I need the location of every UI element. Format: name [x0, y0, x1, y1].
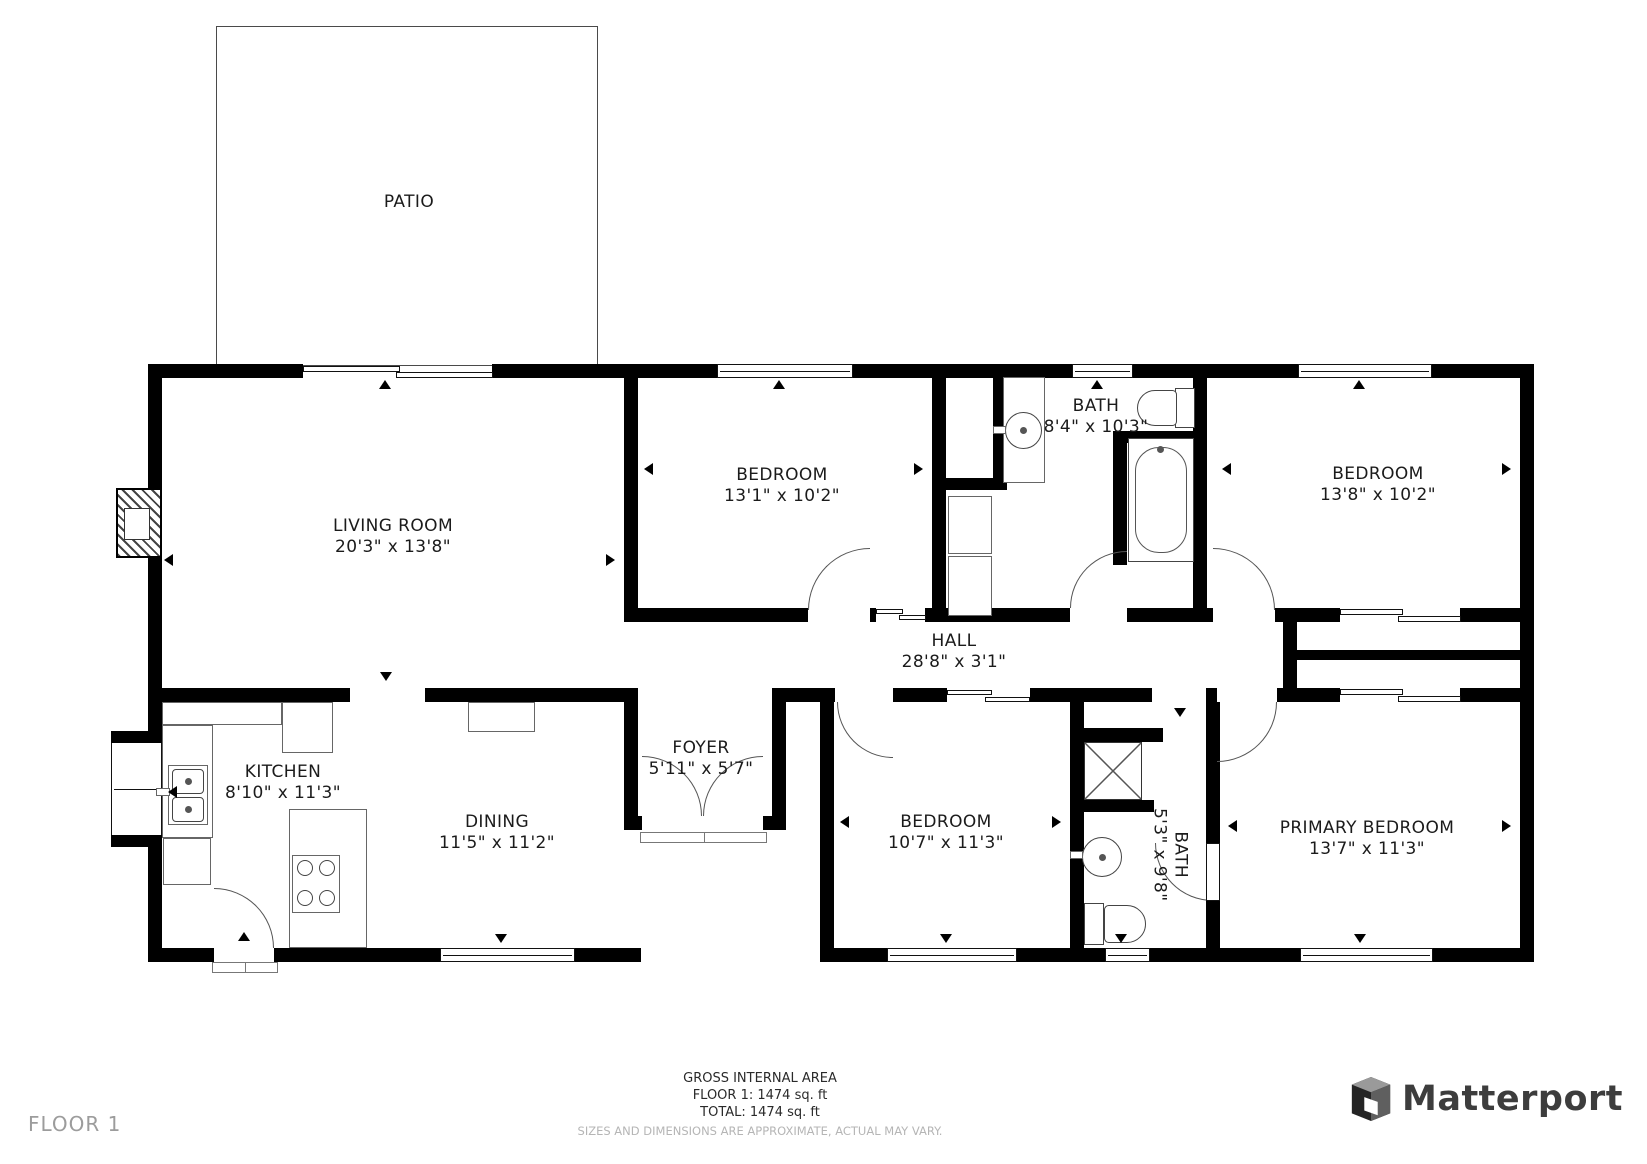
- room-dims: 5'3" x 9'8": [1149, 770, 1170, 940]
- wall: [1283, 608, 1297, 702]
- wall: [111, 731, 162, 743]
- door-leaf: [1206, 843, 1220, 901]
- room-label-bedroom-right: BEDROOM 13'8" x 10'2": [1238, 464, 1518, 505]
- door-arc: [1070, 551, 1127, 608]
- room-dims: 20'3" x 13'8": [253, 537, 533, 558]
- wall: [148, 364, 303, 378]
- closet-cabinet: [948, 556, 992, 616]
- direction-arrow: [1354, 934, 1366, 943]
- rear-step: [212, 962, 278, 973]
- direction-arrow: [606, 554, 615, 566]
- room-name: HALL: [814, 631, 1094, 652]
- wall: [274, 948, 440, 962]
- matterport-logo: Matterport: [1348, 1076, 1623, 1122]
- wall: [148, 948, 214, 962]
- room-label-bedroom-bottom: BEDROOM 10'7" x 11'3": [806, 812, 1086, 853]
- room-name: BEDROOM: [1238, 464, 1518, 485]
- closet-cabinet: [948, 496, 992, 554]
- direction-arrow: [495, 934, 507, 943]
- direction-arrow: [380, 672, 392, 681]
- shower-x: [1084, 742, 1142, 800]
- matterport-icon: [1348, 1076, 1394, 1122]
- closet-slider-panel: [1340, 689, 1403, 695]
- toilet-tank: [1084, 903, 1104, 945]
- room-name: PATIO: [269, 192, 549, 213]
- room-dims: 5'11" x 5'7": [561, 759, 841, 780]
- floor-plan: PATIO: [0, 0, 1647, 1164]
- direction-arrow: [379, 380, 391, 389]
- wall: [1433, 948, 1534, 962]
- window: [1298, 364, 1432, 378]
- wall: [946, 478, 1007, 490]
- window: [717, 364, 853, 378]
- direction-arrow: [773, 380, 785, 389]
- kitchen-cabinet: [163, 838, 211, 885]
- wall: [853, 364, 1072, 378]
- window: [440, 948, 575, 962]
- room-name: BEDROOM: [642, 465, 922, 486]
- room-name: BATH: [956, 396, 1236, 417]
- wall: [624, 364, 638, 622]
- wall: [624, 608, 808, 622]
- wall: [763, 816, 786, 830]
- wall: [1460, 608, 1534, 622]
- room-dims: 13'7" x 11'3": [1227, 839, 1507, 860]
- room-dims: 11'5" x 11'2": [357, 833, 637, 854]
- wall: [1206, 688, 1217, 702]
- wall: [148, 688, 350, 702]
- wall: [1432, 364, 1534, 378]
- window: [1300, 948, 1433, 962]
- kitchen-counter: [162, 702, 282, 725]
- bathtub: [1128, 438, 1194, 562]
- room-name: BATH: [1170, 770, 1191, 940]
- direction-arrow: [164, 554, 173, 566]
- door-arc: [837, 702, 893, 758]
- bathtub-inner: [1135, 447, 1187, 553]
- direction-arrow: [1174, 708, 1186, 717]
- direction-arrow: [1115, 934, 1127, 943]
- floor-tag: FLOOR 1: [28, 1112, 121, 1136]
- direction-arrow: [940, 934, 952, 943]
- room-name: FOYER: [561, 738, 841, 759]
- stove-burner: [319, 890, 335, 906]
- wall: [492, 364, 717, 378]
- fireplace-insert: [124, 508, 150, 540]
- sink-drain: [185, 806, 192, 813]
- wall: [1133, 364, 1298, 378]
- window: [1105, 948, 1150, 962]
- room-dims: 28'8" x 3'1": [814, 652, 1094, 673]
- wall: [1460, 688, 1534, 702]
- room-dims: 10'7" x 11'3": [806, 833, 1086, 854]
- room-label-living-room: LIVING ROOM 20'3" x 13'8": [253, 516, 533, 557]
- room-label-bath-top: BATH 8'4" x 10'3": [956, 396, 1236, 437]
- total-area-line: TOTAL: 1474 sq. ft: [360, 1104, 1160, 1121]
- room-name: KITCHEN: [143, 762, 423, 783]
- stove-burner: [297, 860, 313, 876]
- wall: [425, 688, 638, 702]
- wall: [111, 835, 162, 847]
- room-dims: 8'4" x 10'3": [956, 417, 1236, 438]
- door-arc: [1213, 548, 1275, 610]
- sliding-door-panel: [303, 366, 400, 372]
- direction-arrow: [1222, 463, 1231, 475]
- wall: [1520, 364, 1534, 962]
- wall: [893, 688, 947, 702]
- room-name: LIVING ROOM: [253, 516, 533, 537]
- room-label-bath-bottom: BATH 5'3" x 9'8": [1149, 770, 1190, 940]
- closet-slider-panel: [876, 609, 903, 614]
- wall: [1220, 948, 1300, 962]
- room-label-hall: HALL 28'8" x 3'1": [814, 631, 1094, 672]
- wall: [575, 948, 641, 962]
- wall: [148, 364, 162, 962]
- footer-area-summary: GROSS INTERNAL AREA FLOOR 1: 1474 sq. ft…: [360, 1070, 1160, 1140]
- sliding-door-panel: [396, 372, 493, 378]
- stove-burner: [319, 860, 335, 876]
- dining-sideboard: [468, 702, 535, 732]
- closet-slider-panel: [1398, 616, 1461, 622]
- wall: [1070, 800, 1154, 812]
- matterport-wordmark: Matterport: [1402, 1079, 1623, 1119]
- room-dims: 13'8" x 10'2": [1238, 485, 1518, 506]
- room-dims: 8'10" x 11'3": [143, 783, 423, 804]
- wall: [932, 364, 946, 622]
- closet-slider-panel: [947, 690, 992, 695]
- room-label-bedroom-top: BEDROOM 13'1" x 10'2": [642, 465, 922, 506]
- room-label-kitchen: KITCHEN 8'10" x 11'3": [143, 762, 423, 803]
- wall: [1030, 688, 1152, 702]
- room-label-dining: DINING 11'5" x 11'2": [357, 812, 637, 853]
- room-label-patio: PATIO: [269, 192, 549, 213]
- window: [1072, 364, 1133, 378]
- door-arc: [808, 548, 870, 610]
- room-label-primary-bedroom: PRIMARY BEDROOM 13'7" x 11'3": [1227, 818, 1507, 859]
- wall: [1113, 431, 1127, 565]
- room-name: DINING: [357, 812, 637, 833]
- gross-internal-area-title: GROSS INTERNAL AREA: [360, 1070, 1160, 1087]
- closet-slider-panel: [1398, 696, 1461, 702]
- wall: [1297, 650, 1534, 660]
- stove-burner: [297, 890, 313, 906]
- closet-slider-panel: [1340, 609, 1403, 615]
- wall: [925, 608, 1070, 622]
- room-name: BEDROOM: [806, 812, 1086, 833]
- window: [887, 948, 1017, 962]
- door-arc: [1217, 702, 1277, 762]
- wall: [1017, 948, 1105, 962]
- tub-faucet: [1157, 446, 1164, 453]
- entry-step: [640, 832, 767, 843]
- closet-slider-panel: [985, 697, 1030, 702]
- room-name: PRIMARY BEDROOM: [1227, 818, 1507, 839]
- room-label-foyer: FOYER 5'11" x 5'7": [561, 738, 841, 779]
- direction-arrow: [1353, 380, 1365, 389]
- closet-slider-panel: [899, 615, 926, 620]
- wall: [1084, 728, 1163, 742]
- direction-arrow: [1091, 380, 1103, 389]
- sink-drain: [1099, 854, 1106, 861]
- direction-arrow: [238, 932, 250, 941]
- kitchen-counter: [282, 702, 333, 753]
- disclaimer: SIZES AND DIMENSIONS ARE APPROXIMATE, AC…: [360, 1123, 1160, 1140]
- room-dims: 13'1" x 10'2": [642, 486, 922, 507]
- floor-area-line: FLOOR 1: 1474 sq. ft: [360, 1087, 1160, 1104]
